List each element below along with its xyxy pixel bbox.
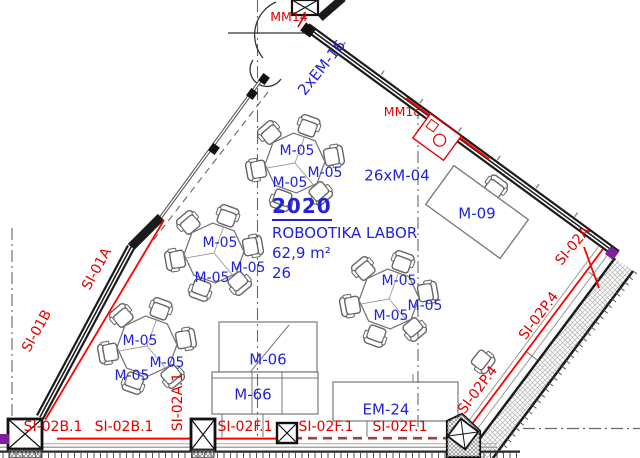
chair-icon (175, 326, 198, 352)
mm1c-fixture (413, 114, 461, 161)
chair-icon (245, 157, 268, 183)
chair-icon (97, 340, 120, 366)
chair-icon (417, 279, 440, 305)
plan-linework (0, 0, 640, 458)
glass-wall (152, 73, 270, 242)
chair-icon (339, 293, 362, 319)
chair-icon (242, 233, 265, 259)
chair-icon (468, 347, 497, 377)
chair-icon (164, 247, 187, 273)
purple-marker-left (0, 434, 9, 444)
furniture-boxes (212, 322, 458, 437)
chair-icon (323, 143, 346, 169)
floor-plan: MM14 MM1c 2xEM-16 26xM-04 M-09 M-06 M-66… (0, 0, 640, 458)
bottom-wall (0, 438, 520, 458)
